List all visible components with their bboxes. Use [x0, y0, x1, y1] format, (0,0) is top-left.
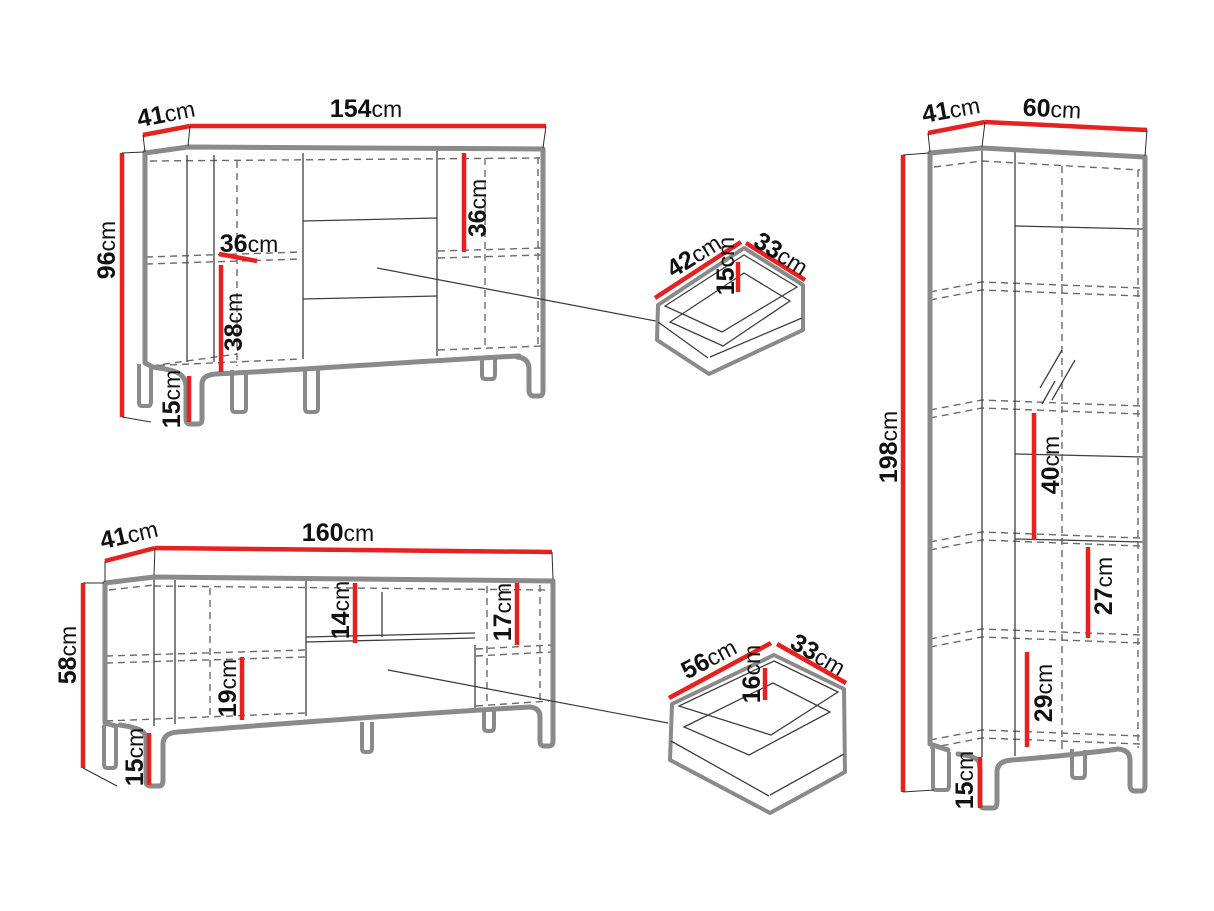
bottom-drawer-drawing: 56cm 33cm 16cm [669, 628, 850, 813]
sideboard-middle-leg-2 [305, 370, 318, 412]
tall-cabinet-lower-shelf-label: 29cm [1030, 664, 1058, 722]
tall-cabinet-leg-label: 15cm [951, 751, 979, 809]
tv-stand-height-label: 58cm [54, 626, 82, 684]
sideboard-right-section-label: 36cm [464, 179, 492, 237]
sideboard-leg-label: 15cm [158, 370, 186, 428]
sideboard-left-edge [145, 152, 151, 366]
tall-cabinet-width-label: 60cm [1022, 93, 1082, 124]
tv-stand-partition-lines [154, 577, 475, 726]
tv-stand-leg-label: 15cm [121, 728, 149, 786]
tall-cabinet-dashed-top-inset [934, 161, 1140, 170]
tall-cabinet-height-label: 198cm [875, 411, 903, 483]
sideboard-right-shelf-dashed [438, 248, 542, 258]
sideboard-drawer-seams [303, 218, 437, 299]
tall-cabinet-drawing: 41cm 60cm 198cm 40cm 27cm 29cm 15cm [875, 91, 1147, 809]
sideboard-shelf-width-label: 36cm [220, 230, 278, 258]
tv-stand-back-left-leg [104, 725, 116, 768]
tall-cabinet-shelf-band-4 [930, 629, 1140, 647]
sideboard-back-right-leg [482, 358, 495, 379]
sideboard-drawing: 41cm 154cm 96cm 36cm 38cm 36cm 15cm [93, 95, 546, 429]
tall-cabinet-glass-shine [1040, 350, 1075, 404]
tv-stand-left-shelf-dashed [106, 650, 305, 663]
sideboard-width-label: 154cm [330, 95, 402, 123]
top-drawer-drawing: 42cm 33cm 15cm [655, 227, 813, 374]
tall-cabinet-shelf-band-1 [930, 282, 1140, 300]
sideboard-left-section-label: 38cm [220, 293, 248, 351]
bottom-drawer-height-label: 16cm [738, 645, 766, 703]
tv-stand-right-edge-and-leg [530, 581, 553, 746]
sideboard-back-left-leg [139, 364, 151, 406]
sideboard-height-label: 96cm [93, 221, 121, 279]
tv-stand-back-right-leg [484, 709, 494, 731]
sideboard-drawer-leader-line [377, 268, 661, 322]
tall-cabinet-upper-shelf-label: 40cm [1037, 436, 1065, 494]
tall-cabinet-right-edge-and-leg [1118, 157, 1145, 791]
tall-cabinet-bottom-band [930, 730, 1140, 748]
tv-stand-right-section-label: 17cm [489, 583, 517, 641]
tv-stand-width-label: 160cm [302, 519, 374, 547]
sideboard-right-edge-and-leg [517, 149, 543, 396]
sideboard-dashed-top-inset [150, 158, 540, 161]
tv-stand-middle-leg [362, 722, 372, 752]
furniture-dimensions-diagram: 41cm 154cm 96cm 36cm 38cm 36cm 15cm 42cm… [0, 0, 1214, 911]
top-drawer-height-label: 15cm [712, 237, 740, 295]
tv-stand-rail-and-front-leg [120, 707, 530, 786]
tall-cabinet-middle-shelf-label: 27cm [1090, 557, 1118, 615]
tv-stand-left-edge [105, 583, 116, 726]
tall-cabinet-left-edge [930, 153, 948, 750]
tv-stand-left-section-label: 19cm [214, 659, 242, 717]
tv-stand-drawing: 41cm 160cm 58cm 14cm 17cm 19cm 15cm [54, 515, 553, 786]
tv-stand-niche-label: 14cm [327, 581, 355, 639]
sideboard-middle-leg-1 [232, 370, 246, 412]
sideboard-bottom-rail-and-front-leg [152, 356, 519, 424]
